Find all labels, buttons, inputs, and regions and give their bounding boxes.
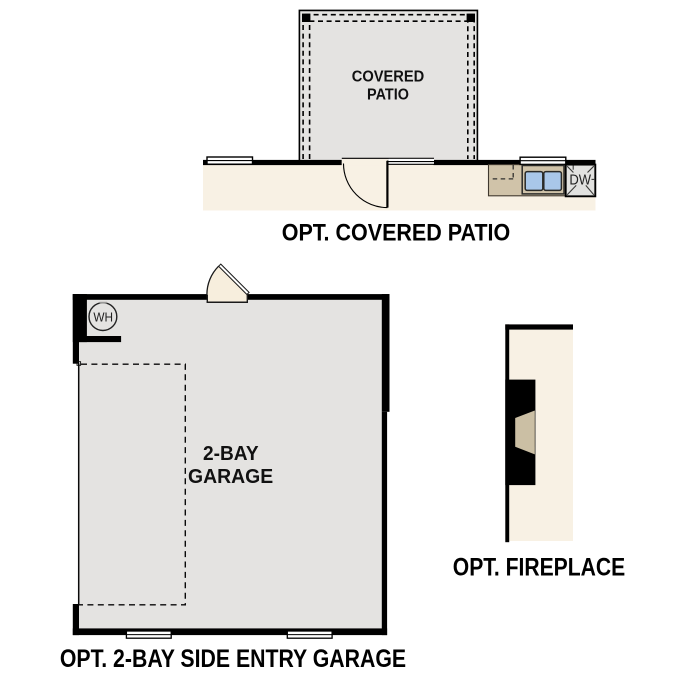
svg-text:OPT. FIREPLACE: OPT. FIREPLACE (453, 554, 625, 581)
svg-text:OPT. 2-BAY SIDE ENTRY GARAGE: OPT. 2-BAY SIDE ENTRY GARAGE (60, 646, 406, 673)
svg-text:PATIO: PATIO (367, 87, 409, 104)
svg-text:GARAGE: GARAGE (188, 465, 273, 488)
svg-text:COVERED: COVERED (352, 69, 425, 86)
svg-text:DW: DW (569, 173, 591, 189)
svg-text:OPT. COVERED PATIO: OPT. COVERED PATIO (282, 221, 511, 247)
svg-text:2-BAY: 2-BAY (203, 442, 259, 465)
svg-text:WH: WH (93, 309, 113, 324)
